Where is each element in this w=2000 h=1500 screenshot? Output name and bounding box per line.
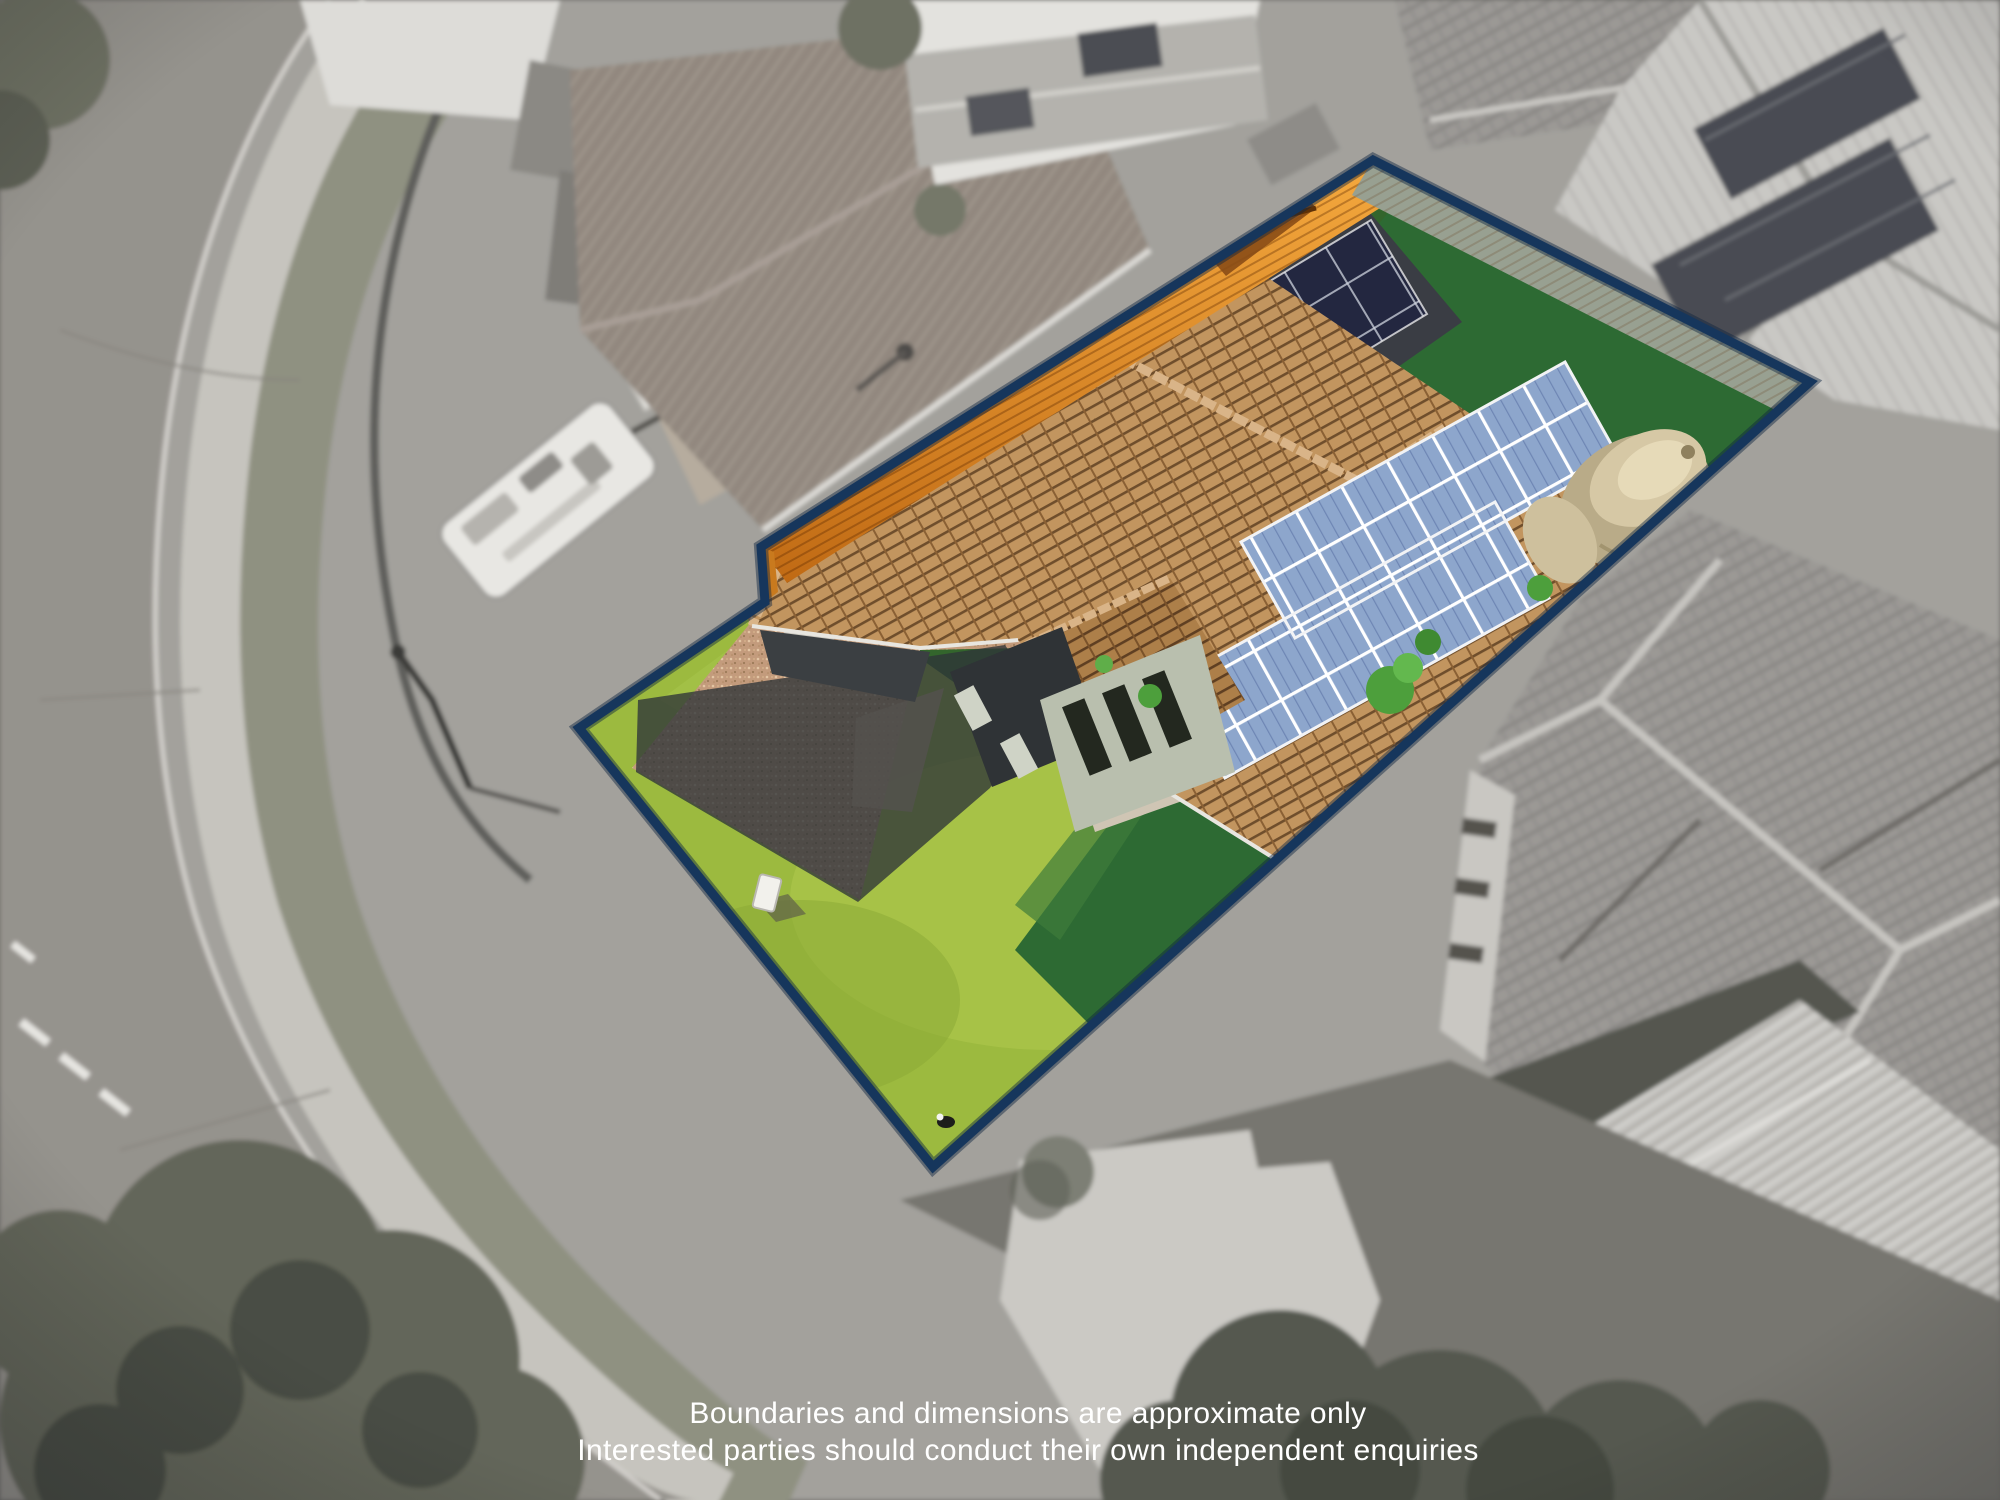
disclaimer-line-1: Boundaries and dimensions are approximat… [28,1395,2000,1432]
disclaimer-text: Boundaries and dimensions are approximat… [28,1395,2000,1469]
aerial-photo-canvas [0,0,2000,1500]
vignette [0,0,2000,1500]
disclaimer-line-2: Interested parties should conduct their … [28,1432,2000,1469]
aerial-photo: Boundaries and dimensions are approximat… [0,0,2000,1500]
